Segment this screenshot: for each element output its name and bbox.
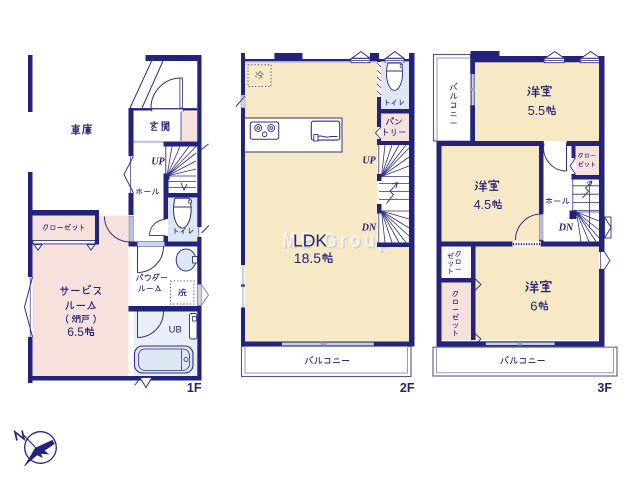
svg-text:UP: UP [362, 156, 376, 167]
svg-text:1F: 1F [187, 381, 202, 395]
svg-text:DN: DN [558, 223, 574, 234]
svg-text:5.5: 5.5 [528, 104, 545, 118]
svg-text:DN: DN [361, 223, 377, 234]
svg-text:2F: 2F [400, 381, 415, 395]
svg-text:4.5: 4.5 [474, 198, 491, 212]
svg-text:LDK: LDK [293, 231, 327, 251]
svg-text:18.5: 18.5 [294, 250, 321, 266]
svg-text:UP: UP [151, 157, 165, 168]
svg-text:UB: UB [169, 325, 182, 336]
svg-text:3F: 3F [597, 381, 612, 395]
svg-text:6: 6 [530, 299, 537, 314]
svg-text:6.5: 6.5 [67, 325, 84, 339]
